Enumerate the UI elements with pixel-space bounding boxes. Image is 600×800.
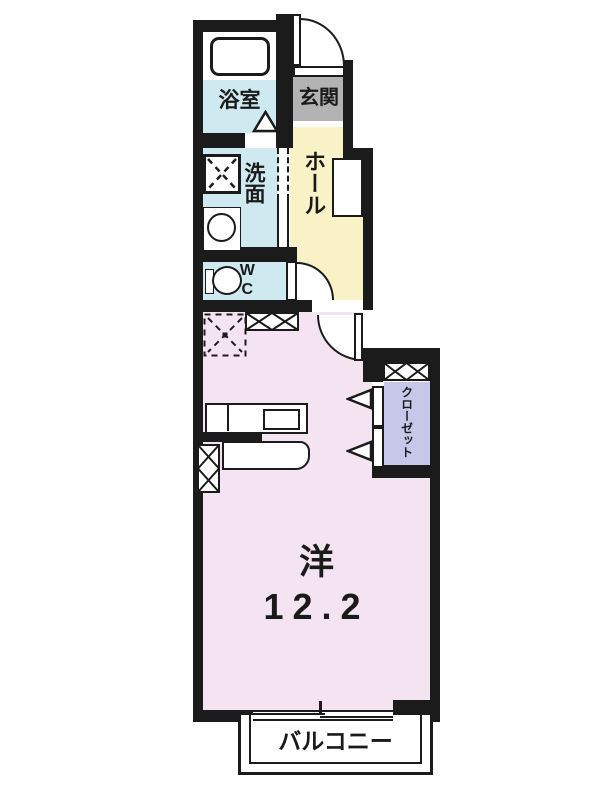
wall-left xyxy=(193,20,203,722)
room-door-leaf xyxy=(354,313,363,361)
floor-plan: 浴室 玄関 洗面 ホール WC クローゼット 洋 12.2 バルコニー xyxy=(0,0,600,800)
bath-folding-door-icon xyxy=(252,110,279,133)
window-symbol xyxy=(245,312,299,331)
wall-hall-right xyxy=(363,148,373,310)
main-room-size-label: 12.2 xyxy=(203,588,430,626)
wall-right-outer xyxy=(430,348,440,722)
closet-door-panel xyxy=(372,427,384,468)
sliding-window-center-tick xyxy=(319,701,322,713)
window-symbol xyxy=(197,444,220,493)
wall-bath-bottom xyxy=(193,133,245,148)
closet-label: クローゼット xyxy=(400,386,413,464)
kitchen-counter-divider xyxy=(207,405,229,431)
washbasin-bowl xyxy=(207,213,236,242)
wc-door-leaf xyxy=(286,261,297,301)
closet-door-panel xyxy=(372,386,384,427)
room-main xyxy=(203,312,363,710)
entrance-label: 玄関 xyxy=(293,88,345,109)
entrance-threshold xyxy=(293,66,345,77)
washroom-label: 洗面 xyxy=(242,162,264,242)
hall-label: ホール xyxy=(302,150,325,258)
hall-storage-cabinet xyxy=(332,158,363,217)
sliding-window-rail xyxy=(253,713,325,715)
front-door-swing-arc xyxy=(300,18,345,66)
front-door-leaf xyxy=(292,14,301,66)
kitchen-sink xyxy=(263,409,300,430)
window-symbol xyxy=(383,362,430,381)
washroom-hall-opening-dashed xyxy=(277,148,279,200)
bathtub xyxy=(210,37,270,76)
closet-door-arrow-icon xyxy=(346,388,373,410)
balcony-label: バルコニー xyxy=(249,729,422,753)
wc-label: WC xyxy=(238,262,255,302)
bathroom-label: 浴室 xyxy=(203,90,276,112)
wall-closet-left-block xyxy=(363,358,383,382)
kitchen-counter-lower xyxy=(222,441,310,470)
wall-wc-bottom xyxy=(193,300,317,312)
closet-door-arrow-icon xyxy=(346,440,373,462)
washroom-hall-thin-wall xyxy=(277,198,289,247)
main-room-type-label: 洋 xyxy=(203,545,430,582)
hall-room-threshold xyxy=(312,300,363,312)
washroom-hall-opening-dashed xyxy=(287,148,289,200)
refrigerator-space-icon xyxy=(203,313,247,357)
room-main-right-strip xyxy=(363,360,372,710)
sliding-window-rail xyxy=(320,716,393,718)
washing-machine-pan-icon xyxy=(203,154,241,194)
